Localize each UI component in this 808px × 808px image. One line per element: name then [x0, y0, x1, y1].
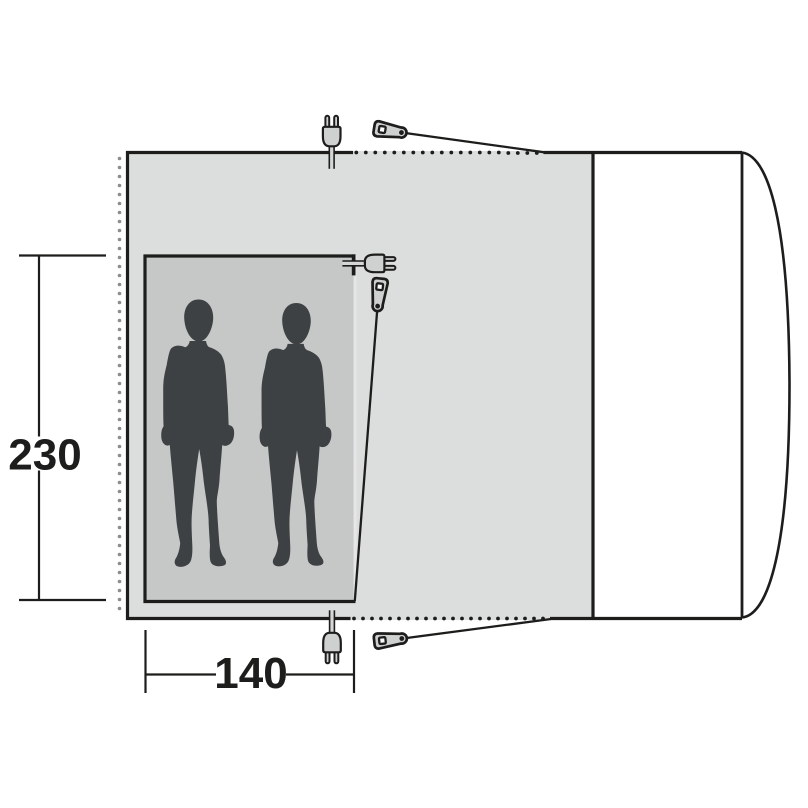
svg-text:140: 140 — [214, 649, 287, 698]
svg-text:230: 230 — [8, 431, 81, 480]
